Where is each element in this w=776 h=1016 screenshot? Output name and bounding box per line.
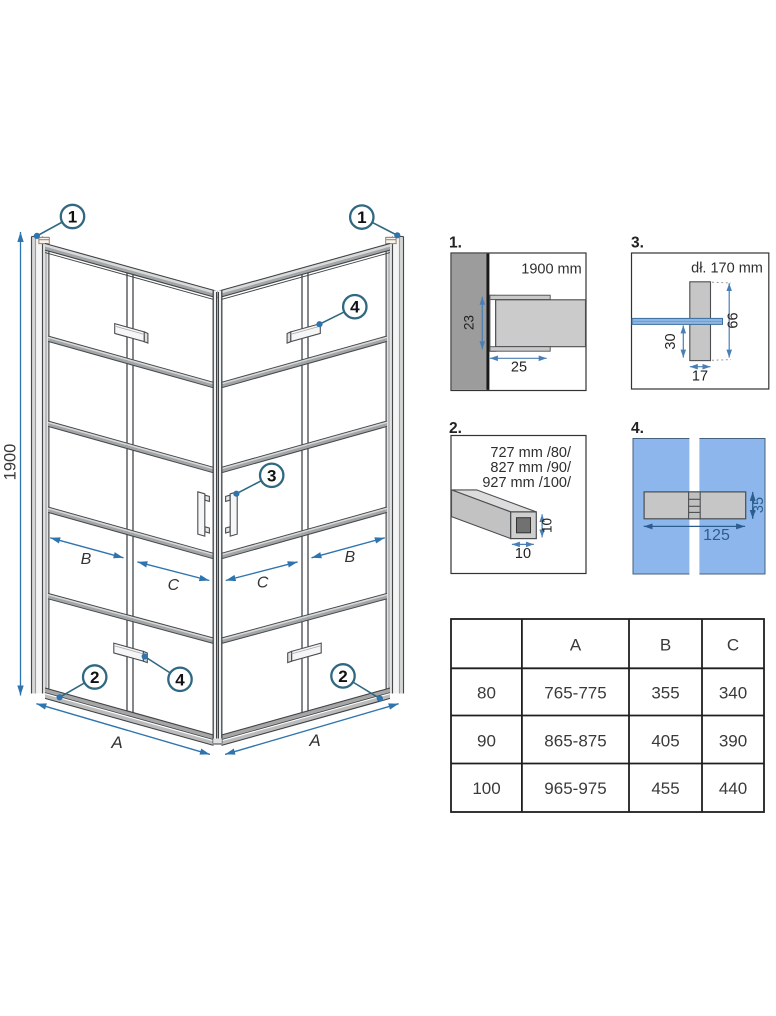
svg-text:1900 mm: 1900 mm [521,262,581,278]
svg-text:dł. 170 mm: dł. 170 mm [691,261,763,277]
svg-text:4: 4 [350,298,360,317]
svg-text:455: 455 [651,779,679,798]
svg-text:2: 2 [338,667,347,686]
svg-text:10: 10 [540,518,555,533]
svg-text:355: 355 [651,684,679,703]
svg-text:1.: 1. [449,235,462,252]
svg-text:1900: 1900 [1,444,19,481]
svg-text:B: B [344,549,355,566]
svg-text:4.: 4. [631,420,644,437]
svg-text:827 mm /90/: 827 mm /90/ [490,460,572,476]
svg-text:440: 440 [719,779,747,798]
svg-text:340: 340 [719,684,747,703]
svg-text:23: 23 [462,315,477,330]
svg-text:4: 4 [175,670,185,689]
svg-text:90: 90 [477,732,496,751]
svg-text:C: C [727,636,739,655]
svg-text:1: 1 [357,208,366,227]
svg-text:A: A [308,731,320,750]
svg-text:865-875: 865-875 [544,732,606,751]
svg-text:927 mm /100/: 927 mm /100/ [482,475,572,491]
svg-text:B: B [81,551,92,568]
svg-text:1: 1 [68,208,77,227]
svg-text:66: 66 [726,312,742,328]
svg-text:2: 2 [90,668,99,687]
svg-text:A: A [110,733,122,752]
svg-text:35: 35 [751,497,767,513]
svg-text:727 mm /80/: 727 mm /80/ [490,445,572,461]
svg-text:100: 100 [472,779,500,798]
svg-text:10: 10 [515,546,531,562]
svg-text:25: 25 [511,360,527,376]
svg-text:765-775: 765-775 [544,684,606,703]
svg-text:3: 3 [267,466,276,485]
svg-text:B: B [660,636,671,655]
svg-text:390: 390 [719,732,747,751]
svg-text:C: C [257,575,269,592]
svg-text:C: C [168,577,180,594]
svg-text:80: 80 [477,684,496,703]
svg-text:3.: 3. [631,235,644,252]
svg-text:125: 125 [703,527,730,544]
svg-text:2.: 2. [449,420,462,437]
svg-text:17: 17 [692,369,708,385]
svg-text:405: 405 [651,732,679,751]
svg-text:A: A [570,636,582,655]
svg-text:965-975: 965-975 [544,779,606,798]
svg-text:30: 30 [663,333,679,349]
